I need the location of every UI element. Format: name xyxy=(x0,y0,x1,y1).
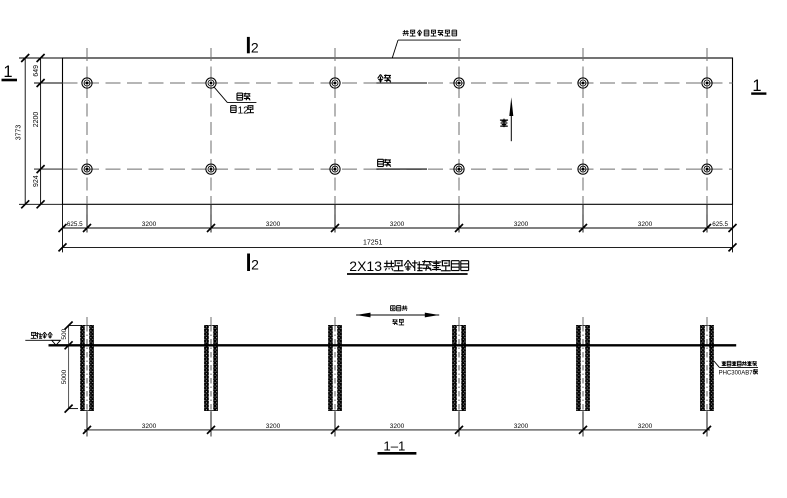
svg-text:17251: 17251 xyxy=(363,240,383,247)
svg-text:3200: 3200 xyxy=(638,221,653,228)
svg-text:649: 649 xyxy=(33,65,40,77)
svg-text:2X13: 2X13 xyxy=(349,258,382,274)
svg-text:625.5: 625.5 xyxy=(67,221,83,228)
svg-text:PHC300AB70: PHC300AB70 xyxy=(719,371,757,377)
svg-text:1: 1 xyxy=(3,63,12,81)
svg-text:2: 2 xyxy=(251,257,259,273)
svg-text:3200: 3200 xyxy=(142,423,157,430)
svg-text:3200: 3200 xyxy=(514,221,529,228)
svg-text:1: 1 xyxy=(752,77,761,95)
svg-text:3200: 3200 xyxy=(390,423,405,430)
svg-text:5000: 5000 xyxy=(61,369,68,384)
svg-text:3200: 3200 xyxy=(142,221,157,228)
svg-text:3200: 3200 xyxy=(638,423,653,430)
svg-text:3200: 3200 xyxy=(266,423,281,430)
svg-text:625.5: 625.5 xyxy=(712,221,728,228)
svg-text:3200: 3200 xyxy=(266,221,281,228)
svg-text:500: 500 xyxy=(61,328,68,339)
svg-text:3200: 3200 xyxy=(390,221,405,228)
svg-text:2: 2 xyxy=(251,40,259,56)
svg-text:12: 12 xyxy=(238,105,250,116)
svg-text:3200: 3200 xyxy=(514,423,529,430)
svg-text:3773: 3773 xyxy=(16,125,23,141)
svg-text:1–1: 1–1 xyxy=(383,438,405,453)
svg-text:924: 924 xyxy=(33,175,40,187)
svg-text:2200: 2200 xyxy=(33,112,40,128)
